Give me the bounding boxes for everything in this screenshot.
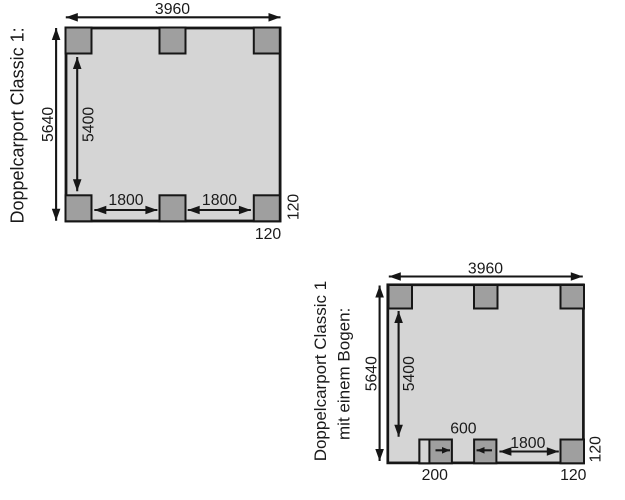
svg-text:200: 200 — [422, 467, 449, 484]
svg-text:3960: 3960 — [155, 1, 190, 18]
svg-text:5640: 5640 — [40, 107, 57, 142]
svg-text:mit einem Bogen:: mit einem Bogen: — [335, 308, 354, 440]
svg-text:120: 120 — [255, 226, 282, 243]
svg-text:600: 600 — [450, 421, 477, 438]
svg-text:5400: 5400 — [401, 356, 418, 391]
svg-text:Doppelcarport Classic 1:: Doppelcarport Classic 1: — [8, 27, 28, 223]
svg-text:3960: 3960 — [468, 261, 503, 278]
svg-text:1800: 1800 — [108, 192, 143, 209]
svg-text:120: 120 — [286, 194, 303, 221]
svg-text:1800: 1800 — [202, 192, 237, 209]
svg-text:120: 120 — [588, 436, 605, 463]
svg-text:5640: 5640 — [364, 356, 381, 391]
svg-text:120: 120 — [560, 467, 587, 484]
svg-text:5400: 5400 — [81, 107, 98, 142]
svg-text:1800: 1800 — [510, 435, 545, 452]
svg-text:Doppelcarport Classic 1: Doppelcarport Classic 1 — [311, 281, 330, 461]
